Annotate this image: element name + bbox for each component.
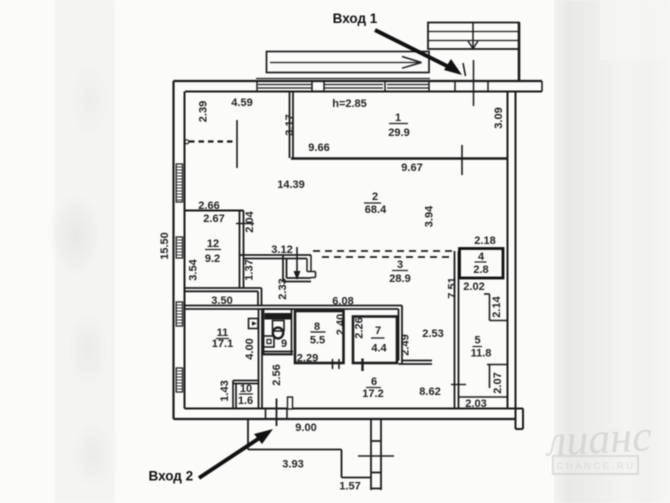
svg-text:9.66: 9.66 xyxy=(308,142,329,154)
svg-text:2.04: 2.04 xyxy=(244,210,256,232)
svg-text:4: 4 xyxy=(478,251,485,263)
svg-text:5: 5 xyxy=(474,335,480,347)
svg-text:29.9: 29.9 xyxy=(388,127,409,139)
svg-text:9.67: 9.67 xyxy=(401,162,422,174)
svg-text:6: 6 xyxy=(371,376,377,388)
svg-text:7: 7 xyxy=(375,325,381,337)
svg-text:Вход 1: Вход 1 xyxy=(333,11,378,26)
svg-text:2.07: 2.07 xyxy=(492,372,504,393)
svg-text:6.08: 6.08 xyxy=(332,296,353,308)
svg-text:2.39: 2.39 xyxy=(198,101,210,122)
svg-text:2.53: 2.53 xyxy=(422,328,443,340)
svg-text:3: 3 xyxy=(397,259,403,271)
svg-text:2.67: 2.67 xyxy=(203,213,224,225)
svg-text:лианс: лианс xyxy=(543,411,653,466)
svg-text:2.02: 2.02 xyxy=(463,281,484,293)
svg-text:17.1: 17.1 xyxy=(212,338,233,350)
svg-text:3.12: 3.12 xyxy=(271,244,292,256)
svg-text:2: 2 xyxy=(372,191,378,203)
svg-text:5.5: 5.5 xyxy=(310,335,325,347)
svg-text:4.00: 4.00 xyxy=(244,338,256,359)
svg-text:CHANCE.RU: CHANCE.RU xyxy=(557,461,636,472)
svg-text:68.4: 68.4 xyxy=(365,204,387,216)
svg-text:3.94: 3.94 xyxy=(424,205,436,227)
svg-text:1.57: 1.57 xyxy=(339,481,360,493)
svg-text:2.18: 2.18 xyxy=(474,235,495,247)
svg-text:3.93: 3.93 xyxy=(282,459,303,471)
svg-text:10: 10 xyxy=(240,383,252,395)
svg-text:2.03: 2.03 xyxy=(465,398,486,410)
svg-text:8: 8 xyxy=(314,321,320,333)
svg-text:7.51: 7.51 xyxy=(447,277,459,298)
svg-text:1.37: 1.37 xyxy=(244,259,256,280)
svg-text:3.54: 3.54 xyxy=(188,258,200,280)
svg-text:2.8: 2.8 xyxy=(473,264,488,276)
svg-text:8.62: 8.62 xyxy=(419,386,440,398)
svg-text:9: 9 xyxy=(281,338,287,350)
svg-text:4.4: 4.4 xyxy=(371,343,387,355)
svg-text:h=2.85: h=2.85 xyxy=(332,98,367,110)
svg-text:9.00: 9.00 xyxy=(295,422,316,434)
svg-text:1.6: 1.6 xyxy=(238,395,253,407)
svg-text:2.40: 2.40 xyxy=(335,314,347,335)
svg-text:14.39: 14.39 xyxy=(277,179,305,191)
svg-text:1: 1 xyxy=(395,112,401,124)
svg-text:1.43: 1.43 xyxy=(219,380,231,401)
svg-text:12: 12 xyxy=(207,238,219,250)
svg-text:2.33: 2.33 xyxy=(277,278,289,299)
svg-text:17.2: 17.2 xyxy=(362,388,383,400)
svg-text:2.49: 2.49 xyxy=(400,334,412,355)
svg-text:3.17: 3.17 xyxy=(284,114,296,135)
svg-text:15.50: 15.50 xyxy=(159,232,171,260)
svg-text:2.14: 2.14 xyxy=(491,295,503,317)
svg-text:9.2: 9.2 xyxy=(205,253,220,265)
svg-text:2.26: 2.26 xyxy=(354,317,366,338)
svg-text:2.29: 2.29 xyxy=(297,353,318,365)
svg-text:2.56: 2.56 xyxy=(271,364,283,385)
svg-text:3.50: 3.50 xyxy=(211,295,232,307)
svg-text:11.8: 11.8 xyxy=(471,348,492,360)
svg-text:3.09: 3.09 xyxy=(493,107,505,128)
svg-text:4.59: 4.59 xyxy=(231,97,252,109)
svg-text:Вход 2: Вход 2 xyxy=(149,469,194,484)
svg-text:28.9: 28.9 xyxy=(389,273,410,285)
